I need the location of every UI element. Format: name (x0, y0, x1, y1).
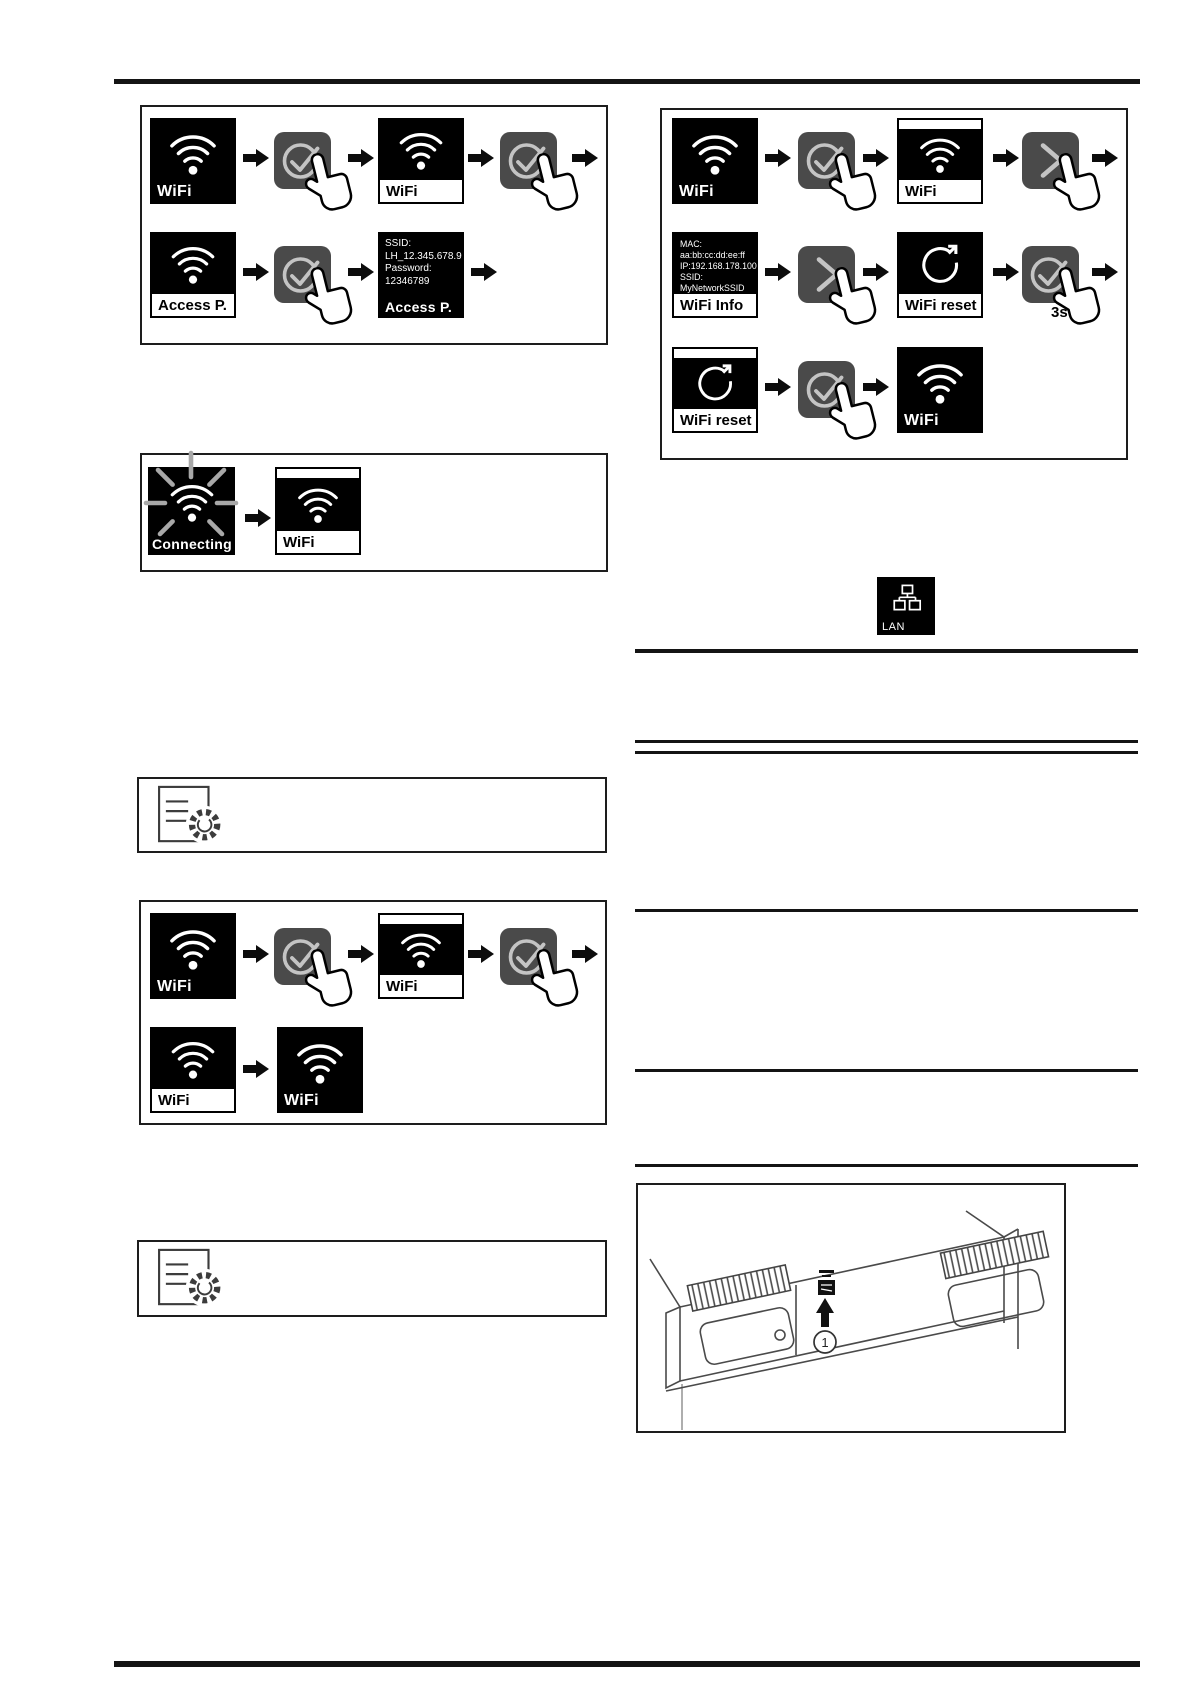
wifi-icon (166, 242, 220, 285)
display-tile-wifi-selected: WiFi (378, 118, 464, 204)
ssid-value: LH_12.345.678.9 (385, 251, 462, 264)
top-rule (114, 79, 1140, 84)
section-rule-lan (635, 649, 1138, 653)
flow-arrow-icon (765, 148, 792, 168)
tile-label-bar: WiFi (152, 1088, 234, 1111)
cabinet-outline (650, 1211, 1018, 1430)
password-value: 12346789 (385, 276, 462, 289)
flow-arrow-icon (243, 944, 270, 964)
section-rule-c (635, 909, 1138, 912)
display-tile-wifi-selected-strip: WiFi (275, 467, 361, 555)
note-settings-icon (155, 784, 231, 846)
tile-label: Connecting (152, 536, 232, 552)
flow-arrow-icon (468, 944, 495, 964)
wifi-icon (293, 484, 343, 524)
flow-arrow-icon (245, 508, 272, 528)
flow-arrow-icon (993, 262, 1020, 282)
tile-top-strip (674, 349, 756, 358)
flow-arrow-icon (243, 1059, 270, 1079)
wifi-icon (911, 359, 969, 405)
wifi-icon (291, 1039, 349, 1085)
wifi-icon (686, 130, 744, 176)
flow-arrow-icon (765, 377, 792, 397)
tile-label-bar: WiFi Info (674, 293, 756, 316)
callout-number: 1 (821, 1335, 828, 1350)
ssid-line: SSID: MyNetworkSSID (680, 272, 754, 294)
section-rule-e (635, 1164, 1138, 1167)
display-tile-wifi-reset-selected-strip: WiFi reset (672, 347, 758, 433)
wifi-icon (165, 480, 219, 523)
tile-label-bar: WiFi (380, 179, 462, 202)
display-tile-wifi-selected: WiFi (150, 1027, 236, 1113)
tile-label-bar: WiFi reset (899, 293, 981, 316)
display-tile-wifi: WiFi (150, 118, 236, 204)
tile-label-bar: WiFi (277, 530, 359, 553)
wifi-icon (396, 929, 446, 969)
tile-label: WiFi (157, 978, 192, 996)
display-tile-wifi: WiFi (897, 347, 983, 433)
tile-label-bar: WiFi reset (674, 408, 756, 431)
flow-arrow-icon (348, 262, 375, 282)
display-tile-access-point-details: SSID: LH_12.345.678.9 Password: 12346789… (378, 232, 464, 318)
tile-label: WiFi (284, 1092, 319, 1110)
reset-icon (692, 360, 739, 407)
flow-arrow-icon (243, 262, 270, 282)
tile-label: WiFi (157, 183, 192, 201)
ssid-caption: SSID: (385, 238, 462, 251)
flow-arrow-icon (348, 148, 375, 168)
ventilation-grilles (687, 1231, 1048, 1366)
tile-label-bar: Access P. (152, 293, 234, 316)
section-rule-double-b (635, 751, 1138, 754)
tile-label: Access P. (385, 299, 452, 315)
display-tile-wifi: WiFi (150, 913, 236, 999)
reset-icon (915, 240, 965, 290)
tile-label: WiFi (904, 412, 939, 430)
bottom-rule (114, 1661, 1140, 1667)
flow-arrow-icon (348, 944, 375, 964)
wifi-icon (166, 1037, 220, 1080)
manual-page: WiFi WiFi Access P. SSID: LH_12.345.678.… (0, 0, 1191, 1684)
flow-arrow-icon (765, 262, 792, 282)
tile-label-bar: WiFi (899, 179, 981, 202)
display-tile-wifi-selected-strip: WiFi (378, 913, 464, 999)
tile-top-strip (899, 120, 981, 129)
display-tile-wifi-info: MAC: aa:bb:cc:dd:ee:ff IP:192.168.178.10… (672, 232, 758, 318)
lan-network-icon (890, 582, 924, 616)
hold-duration-label: 3s (1051, 304, 1068, 321)
lan-label: LAN (882, 621, 905, 633)
display-tile-wifi-reset: WiFi reset (897, 232, 983, 318)
flow-arrow-icon (471, 262, 498, 282)
display-tile-access-point: Access P. (150, 232, 236, 318)
section-rule-double-a (635, 740, 1138, 743)
display-tile-connecting: Connecting (148, 467, 235, 555)
flow-arrow-icon (243, 148, 270, 168)
tile-top-strip (380, 915, 462, 924)
access-point-details-text: SSID: LH_12.345.678.9 Password: 12346789 (385, 238, 462, 288)
tile-label-bar: WiFi (380, 974, 462, 997)
wifi-icon (164, 925, 222, 971)
flow-arrow-icon (993, 148, 1020, 168)
lan-tile: LAN (877, 577, 935, 635)
appliance-lan-port-drawing: 1 (638, 1185, 1064, 1431)
display-tile-wifi: WiFi (672, 118, 758, 204)
section-rule-d (635, 1069, 1138, 1072)
callout-arrow-icon (816, 1298, 834, 1327)
tile-label: WiFi (679, 183, 714, 201)
tile-top-strip (277, 469, 359, 478)
display-tile-wifi-selected-strip: WiFi (897, 118, 983, 204)
note-settings-icon (155, 1247, 231, 1309)
wifi-icon (915, 134, 965, 174)
password-caption: Password: (385, 263, 462, 276)
wifi-icon (394, 128, 448, 171)
flow-arrow-icon (468, 148, 495, 168)
mac-line: MAC: aa:bb:cc:dd:ee:ff (680, 239, 754, 261)
display-tile-wifi: WiFi (277, 1027, 363, 1113)
wifi-icon (164, 130, 222, 176)
ip-line: IP:192.168.178.100 (680, 261, 754, 272)
